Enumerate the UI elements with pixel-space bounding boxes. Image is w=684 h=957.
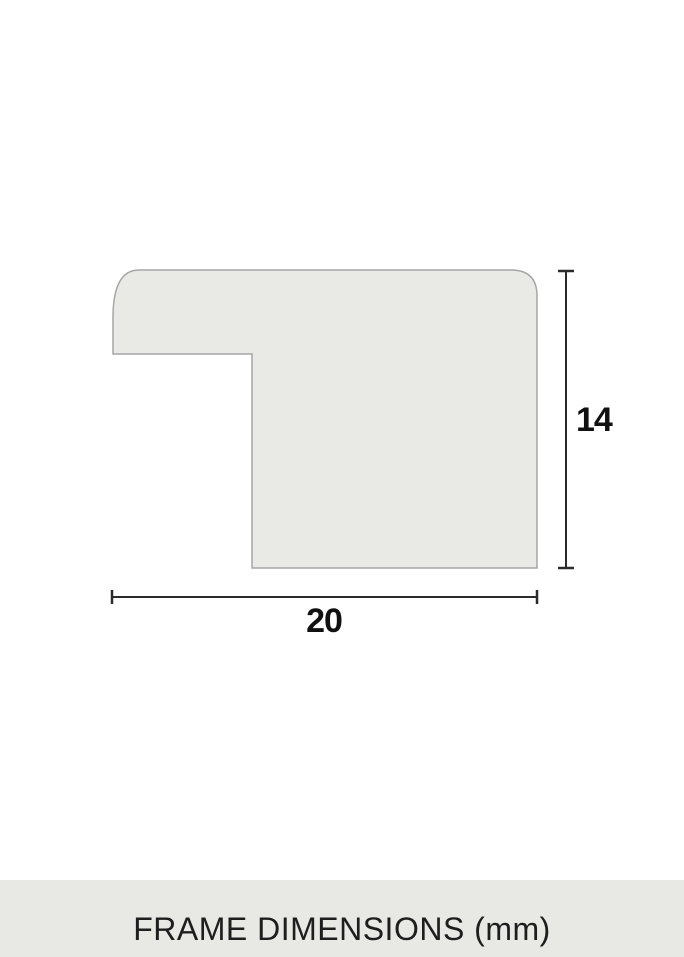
width-dimension-label: 20 xyxy=(306,604,342,638)
height-dimension-line xyxy=(558,271,574,568)
footer-caption: FRAME DIMENSIONS (mm) xyxy=(133,911,551,948)
frame-profile-shape xyxy=(113,270,537,568)
frame-dimensions-page: 14 20 FRAME DIMENSIONS (mm) xyxy=(0,0,684,957)
height-dimension-label: 14 xyxy=(576,403,612,437)
frame-profile-diagram xyxy=(0,0,684,957)
footer-caption-bar: FRAME DIMENSIONS (mm) xyxy=(0,880,684,957)
